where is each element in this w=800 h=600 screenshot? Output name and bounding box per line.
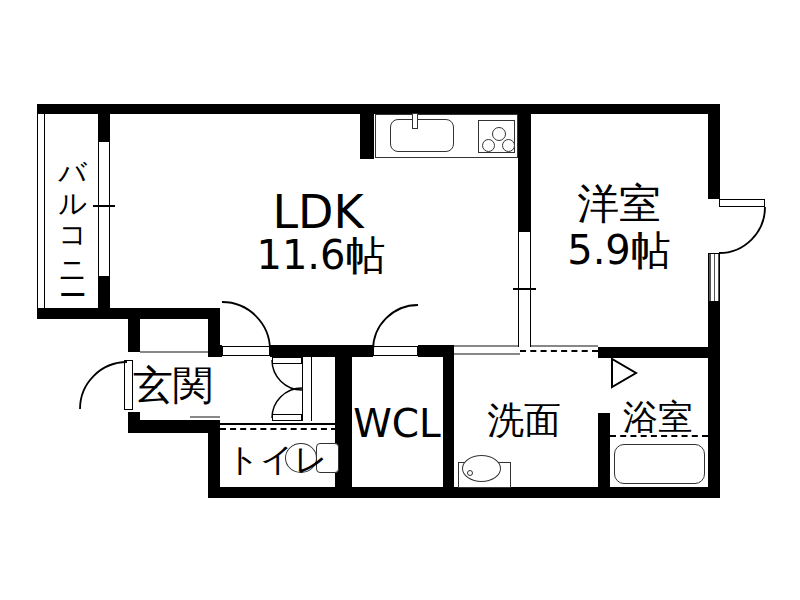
room-size-ldk: 11.6帖: [256, 235, 385, 275]
room-label-ldk: LDK: [272, 189, 363, 235]
room-label-entrance: 玄関: [133, 365, 213, 405]
wcl-door-arc: [373, 305, 418, 350]
door-arcs-overlay: [0, 0, 800, 600]
shoe-cabinet-arc-bottom: [272, 388, 302, 418]
western-room-door-arc: [719, 207, 765, 253]
room-label-washroom: 洗面: [487, 402, 561, 439]
room-label-wcl: WCL: [353, 404, 441, 443]
room-label-balcony: バルコニー: [58, 141, 86, 283]
shoe-cabinet-arc-top: [272, 360, 302, 390]
room-label-toilet: トイレ: [226, 443, 327, 476]
floor-plan: バルコニー LDK 11.6帖 洋室 5.9帖 玄関 トイレ WCL 洗面 浴室: [0, 0, 800, 600]
entrance-door-arc: [80, 362, 127, 409]
bathroom-folding-door-icon: [612, 359, 636, 387]
room-size-western-room: 5.9帖: [567, 230, 671, 270]
hall-ldk-door-arc: [222, 302, 270, 350]
room-label-western-room: 洋室: [577, 183, 661, 225]
room-label-bathroom: 浴室: [623, 400, 693, 435]
